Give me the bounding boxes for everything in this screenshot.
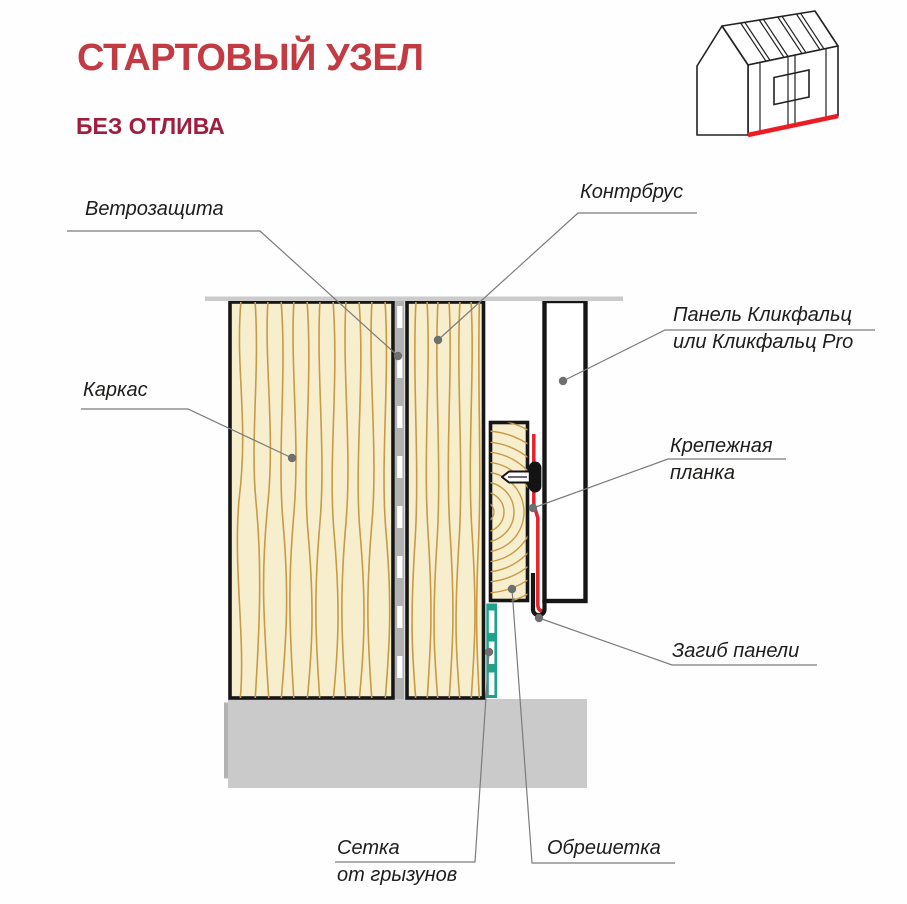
label-panel: Панель Кликфальц или Кликфальц Pro	[673, 302, 853, 356]
panel-profile	[545, 301, 586, 601]
label-panel-line2: или Кликфальц Pro	[673, 329, 853, 356]
label-windbarrier: Ветрозащита	[85, 196, 224, 223]
fastening-strip	[534, 434, 543, 611]
top-reference-line	[205, 297, 623, 302]
label-frame: Каркас	[83, 377, 148, 404]
label-lathing: Обрешетка	[547, 835, 661, 862]
label-panel-line1: Панель Кликфальц	[673, 302, 853, 329]
label-fastener-line2: планка	[670, 460, 773, 487]
label-fastener-line1: Крепежная	[670, 433, 773, 460]
counterbatten-block	[407, 300, 484, 702]
label-mesh-line1: Сетка	[337, 835, 457, 862]
infographic-page: СТАРТОВЫЙ УЗЕЛ БЕЗ ОТЛИВА	[0, 0, 907, 904]
label-panel-bend: Загиб панели	[672, 638, 799, 665]
label-mesh: Сетка от грызунов	[337, 835, 457, 889]
foundation-block	[228, 699, 587, 788]
label-mesh-line2: от грызунов	[337, 862, 457, 889]
label-counterbatten: Контрбрус	[580, 179, 683, 206]
label-fastener: Крепежная планка	[670, 433, 773, 487]
frame-block	[230, 300, 393, 702]
